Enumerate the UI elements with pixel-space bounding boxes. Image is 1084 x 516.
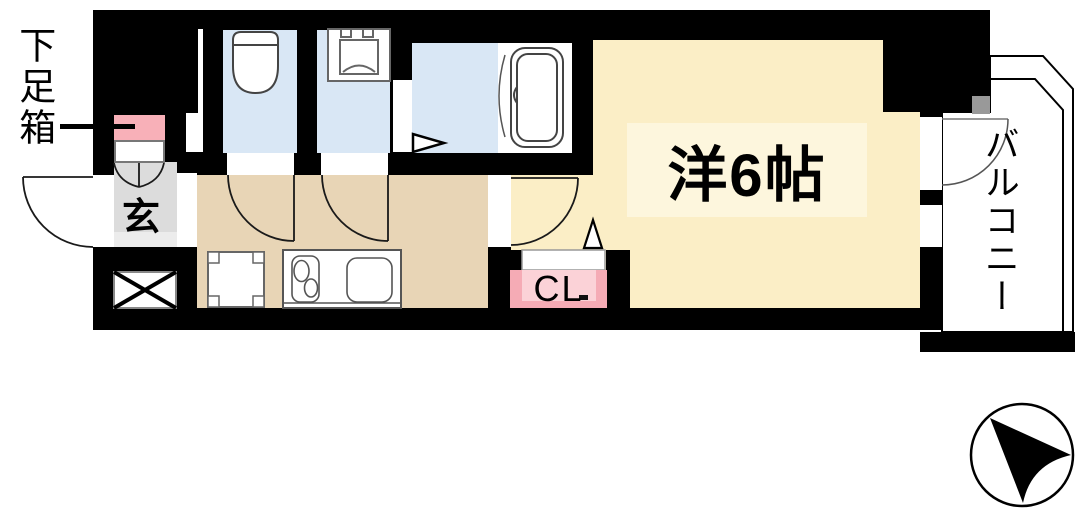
compass-icon: [971, 404, 1073, 506]
pipe-shaft-icon: [114, 272, 176, 308]
shoe-box-counter: [115, 141, 164, 162]
entrance-label: 玄: [122, 186, 160, 241]
toilet-icon: [233, 32, 278, 93]
balcony-window-opening-1: [920, 117, 942, 190]
balcony-label: バルコニー: [980, 126, 1017, 316]
closet-opening: [522, 250, 605, 270]
balcony-bottom-wall: [920, 332, 1075, 352]
floor-plan-drawing: [0, 0, 1084, 516]
main-room-label: 洋6帖: [627, 123, 867, 217]
balcony-door-panel: [972, 96, 990, 114]
floor-plan: 下足箱 玄 洋6帖 CL バルコニー: [0, 0, 1084, 516]
pipe-space-nook: [186, 113, 203, 152]
refrigerator-space-icon: [208, 252, 264, 307]
bathtub-icon: [511, 48, 563, 147]
entry-door-swing: [23, 177, 93, 247]
main-room-door-opening: [488, 175, 511, 247]
laundry-door-opening: [321, 153, 388, 175]
shoe-box-label: 下足箱: [13, 26, 54, 149]
bathroom-door-opening: [393, 80, 412, 152]
entry-door-opening: [93, 175, 114, 247]
kitchen-counter: [283, 250, 401, 308]
closet-label: CL: [510, 270, 607, 308]
closet-side-wall: [606, 250, 630, 308]
room-main-alcove: [511, 175, 593, 250]
entrance-passage-opening: [177, 173, 197, 247]
pipe-space-strip: [198, 29, 203, 113]
shoe-box-pointer-line: [60, 124, 135, 129]
washing-machine-icon: [328, 29, 390, 81]
toilet-door-opening: [227, 153, 294, 175]
balcony-window-opening-2: [920, 205, 942, 247]
